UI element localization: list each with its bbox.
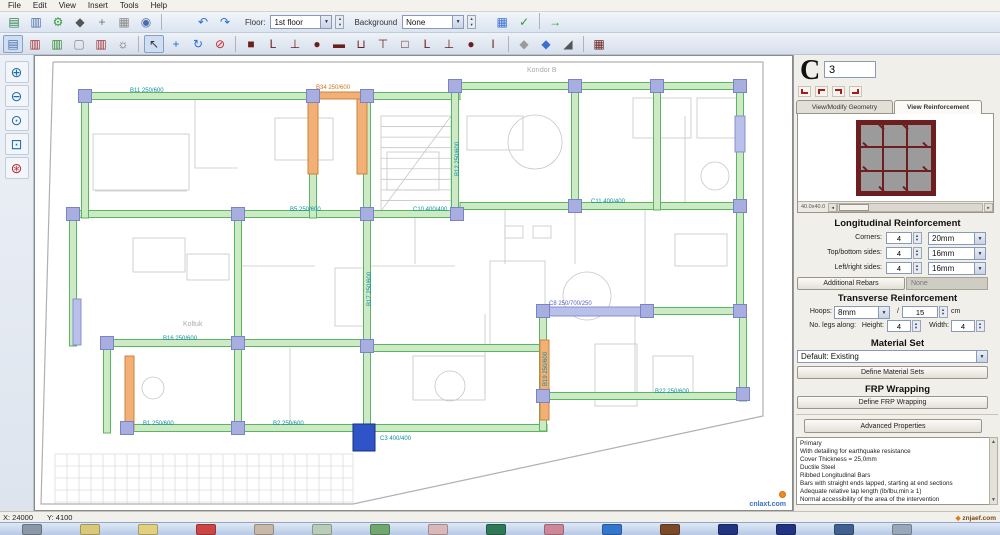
chevron-down-icon[interactable]: ▼ [976, 351, 987, 362]
beam[interactable] [370, 345, 543, 352]
column[interactable] [734, 200, 747, 213]
section-circle-icon[interactable]: ● [307, 35, 327, 53]
plan-canvas[interactable]: cnlaxt.com KoltukKorıdor BB11 250/600B34… [34, 55, 793, 511]
section-octagon-icon[interactable]: ● [461, 35, 481, 53]
note-line: Ribbed Longitudinal Bars [800, 472, 981, 480]
ramp-icon[interactable]: ◢ [558, 35, 578, 53]
leftright-label: Left/right sides: [794, 264, 882, 271]
wall[interactable] [73, 299, 81, 345]
section-drawing [856, 120, 936, 196]
status-bar: X: 24000 Y: 4100 [0, 511, 1000, 522]
menu-insert[interactable]: Insert [83, 1, 113, 10]
taskbar-item-6[interactable] [312, 524, 332, 535]
column[interactable] [734, 80, 747, 93]
building-modeller-icon[interactable]: ▦ [589, 35, 609, 53]
floor-label: Floor: [245, 18, 265, 27]
insert-slab-tool[interactable]: ▢ [69, 35, 89, 53]
taskbar-item-3[interactable] [138, 524, 158, 535]
additional-rebars-button[interactable]: Additional Rebars [797, 277, 905, 290]
redo-icon[interactable]: ↷ [215, 13, 235, 31]
preview-scrollbar[interactable] [837, 203, 983, 212]
section-notes: PrimaryWith detailing for earthquake res… [796, 437, 992, 505]
beam[interactable] [543, 393, 745, 400]
slab-flat-icon[interactable]: ◆ [514, 35, 534, 53]
menu-view[interactable]: View [54, 1, 81, 10]
column[interactable] [79, 90, 92, 103]
element-label: B16 250/600 [163, 336, 198, 342]
floor-select[interactable]: 1st floor ▼ [270, 15, 332, 29]
section-column-icon[interactable]: I [483, 35, 503, 53]
orientation-90-icon[interactable] [815, 86, 828, 97]
topbottom-input[interactable] [886, 247, 912, 259]
corners-diameter-select[interactable]: 20mm ▼ [928, 232, 986, 245]
material-set-title: Material Set [794, 338, 1000, 349]
beam[interactable] [654, 86, 661, 210]
undo-icon[interactable]: ↶ [193, 13, 213, 31]
preview-caption: 40.0x40.0 [798, 204, 828, 210]
column[interactable] [232, 422, 245, 435]
notes-scrollbar[interactable] [989, 437, 998, 505]
column[interactable] [737, 388, 750, 401]
menu-file[interactable]: File [3, 1, 26, 10]
taskbar-item-11[interactable] [602, 524, 622, 535]
building-modeller-window: FileEditViewInsertToolsHelp ▤▥⚙◆+▦◉ ↶↷ F… [0, 0, 1000, 535]
element-label: C11 400/400 [591, 199, 626, 205]
note-line: Normal accessibility of the area of the … [800, 496, 981, 504]
tables-icon[interactable]: ▦ [492, 13, 512, 31]
beam[interactable] [235, 214, 242, 432]
hoops-diameter-value: 8mm [838, 308, 856, 317]
taskbar-item-13[interactable] [718, 524, 738, 535]
note-line: Adequate relative lap length (lb/lbu,min… [800, 488, 981, 496]
watermark-canvas: cnlaxt.com [749, 491, 786, 508]
element-label: C8 250/700/250 [549, 301, 592, 307]
beam[interactable] [82, 96, 89, 218]
section-T2-icon[interactable]: ⊥ [439, 35, 459, 53]
zoom-in-icon[interactable]: ⊕ [5, 61, 29, 83]
corners-spinner[interactable] [913, 232, 922, 244]
toolbar-separator [161, 14, 162, 30]
chevron-down-icon[interactable]: ▼ [974, 263, 985, 274]
topbottom-label: Top/bottom sides: [794, 249, 882, 256]
select-tool[interactable]: ↖ [144, 35, 164, 53]
insert-stair-tool[interactable]: ▥ [91, 35, 111, 53]
floor-value: 1st floor [274, 18, 302, 27]
section-Tbeam-icon[interactable]: ⊤ [373, 35, 393, 53]
column[interactable] [449, 80, 462, 93]
scroll-right-icon[interactable]: ► [984, 203, 993, 212]
hoops-diameter-select[interactable]: 8mm ▼ [834, 306, 890, 319]
beam[interactable] [73, 211, 463, 218]
delete-tool[interactable]: ⊘ [210, 35, 230, 53]
material-set-select[interactable]: Default: Existing ▼ [797, 350, 988, 363]
zoom-out-icon[interactable]: ⊖ [5, 85, 29, 107]
3d-view-icon[interactable]: ◆ [70, 13, 90, 31]
element-label: B11 250/600 [130, 88, 164, 94]
menu-edit[interactable]: Edit [28, 1, 52, 10]
column[interactable] [307, 90, 320, 103]
column[interactable] [361, 208, 374, 221]
beam[interactable] [85, 93, 315, 100]
toolbar-main: ▤▥⚙◆+▦◉ ↶↷ Floor: 1st floor ▼ ▲▼ Backgro… [0, 12, 1000, 33]
column[interactable] [537, 305, 550, 318]
toolbar-separator [539, 13, 540, 29]
svg-text:Koltuk: Koltuk [183, 321, 203, 328]
taskbar-item-2[interactable] [80, 524, 100, 535]
define-frp-wrapping-button[interactable]: Define FRP Wrapping [797, 396, 988, 409]
save-icon[interactable]: ▤ [4, 13, 24, 31]
toolbar-drawing: ▤▥▥▢▥☼↖+↻⊘■L⊥●▬⊔⊤□L⊥●I◆◆◢▦ [0, 33, 1000, 55]
note-line: Primary [800, 440, 981, 448]
toolbar-separator [138, 36, 139, 52]
beam[interactable] [572, 86, 579, 210]
zoom-window-icon[interactable]: ⊡ [5, 133, 29, 155]
menu-help[interactable]: Help [146, 1, 172, 10]
beam[interactable] [647, 308, 745, 315]
additional-rebars-value: None [906, 277, 988, 290]
properties-panel: C View/Modify Geometry View Reinforcemen… [793, 55, 1000, 511]
table-tools-group: ▦✓→ [492, 13, 565, 31]
background-spinner[interactable]: ▲▼ [467, 15, 476, 29]
beam[interactable] [367, 93, 460, 100]
chevron-down-icon[interactable]: ▼ [452, 16, 463, 28]
menu-tools[interactable]: Tools [115, 1, 144, 10]
section-square-icon[interactable]: ■ [241, 35, 261, 53]
column[interactable] [232, 337, 245, 350]
zoom-extents-icon[interactable]: ⊛ [5, 157, 29, 179]
orientation-0-icon[interactable] [798, 86, 811, 97]
print-icon[interactable]: ▦ [114, 13, 134, 31]
beam[interactable] [127, 425, 547, 432]
beam[interactable] [104, 343, 111, 433]
corners-input[interactable] [886, 232, 912, 244]
watermark-logo-icon [779, 491, 786, 498]
element-label: B17 250/600 [367, 271, 373, 306]
tab-view-modify-geometry[interactable]: View/Modify Geometry [796, 100, 893, 114]
corners-diameter-value: 20mm [932, 234, 954, 243]
watermark-diamond-icon: ◆ [956, 515, 961, 522]
run-icon[interactable]: → [545, 13, 565, 31]
taskbar-item-8[interactable] [428, 524, 448, 535]
cursor-y-readout: Y: 4100 [47, 513, 72, 522]
note-line: Cover Thickness = 25,0mm [800, 456, 981, 464]
tab-label: View Reinforcement [907, 104, 969, 111]
column[interactable] [537, 390, 550, 403]
rotate-tool[interactable]: ↻ [188, 35, 208, 53]
note-line: Ductile Steel [800, 464, 981, 472]
element-label: B2 250/600 [273, 421, 304, 427]
orientation-270-icon[interactable] [849, 86, 862, 97]
insert-wall-tool[interactable]: ▥ [47, 35, 67, 53]
legs-width-input[interactable] [951, 320, 975, 332]
taskbar-item-9[interactable] [486, 524, 506, 535]
section-preview: 40.0x40.0 ◄ ► [797, 113, 994, 213]
taskbar-item-14[interactable] [776, 524, 796, 535]
topbottom-diameter-select[interactable]: 16mm ▼ [928, 247, 986, 260]
watermark-taskbar: ◆ znjaef.com [956, 514, 996, 522]
selected-column-C3[interactable] [353, 424, 375, 451]
scroll-left-icon[interactable]: ◄ [828, 203, 837, 212]
taskbar: ◆ znjaef.com [0, 522, 1000, 535]
floor-plan-drawing[interactable]: KoltukKorıdor BB11 250/600B34 250/600B5 … [35, 56, 792, 510]
column[interactable] [67, 208, 80, 221]
menu-bar: FileEditViewInsertToolsHelp [0, 0, 1000, 12]
transverse-title: Transverse Reinforcement [794, 293, 1000, 304]
zoom-toolbar: ⊕⊖⊙⊡⊛ [0, 55, 34, 511]
slab-inclined-icon[interactable]: ◆ [536, 35, 556, 53]
legs-height-input[interactable] [887, 320, 911, 332]
background-value: None [406, 18, 425, 27]
element-label: B19 250/600 [543, 351, 549, 386]
preview-scroll-row: 40.0x40.0 ◄ ► [798, 201, 993, 212]
column[interactable] [361, 90, 374, 103]
leftright-diameter-select[interactable]: 16mm ▼ [928, 262, 986, 275]
column[interactable] [451, 208, 464, 221]
legs-label: No. legs along: [794, 322, 856, 329]
note-line: Bars with straight ends lapped, starting… [800, 480, 981, 488]
section-type-label: C [800, 55, 820, 87]
column[interactable] [651, 80, 664, 93]
undo-group: ↶↷ [193, 13, 235, 31]
column[interactable] [641, 305, 654, 318]
hoop-spacing-input[interactable] [902, 306, 938, 318]
chevron-down-icon[interactable]: ▼ [974, 233, 985, 244]
column[interactable] [121, 422, 134, 435]
corners-label: Corners: [794, 234, 882, 241]
taskbar-item-16[interactable] [892, 524, 912, 535]
leftright-input[interactable] [886, 262, 912, 274]
background-select[interactable]: None ▼ [402, 15, 464, 29]
toolbar-separator [235, 36, 236, 52]
settings-gear-icon[interactable]: ⚙ [48, 13, 68, 31]
longitudinal-title: Longitudinal Reinforcement [794, 218, 1000, 229]
insert-beam-tool[interactable]: ▥ [25, 35, 45, 53]
watermark-domain: cnlaxt.com [749, 501, 786, 508]
column[interactable] [569, 200, 582, 213]
tab-view-reinforcement[interactable]: View Reinforcement [894, 100, 982, 114]
taskbar-item-15[interactable] [834, 524, 854, 535]
export-icon[interactable]: ▥ [26, 13, 46, 31]
shear-wall[interactable] [308, 92, 318, 174]
shear-wall[interactable] [357, 92, 367, 174]
beam[interactable] [455, 83, 743, 90]
chevron-down-icon[interactable]: ▼ [878, 307, 889, 318]
leftright-spinner[interactable] [913, 262, 922, 274]
zoom-actual-icon[interactable]: ⊙ [5, 109, 29, 131]
watermark-domain: znjaef.com [962, 515, 996, 522]
spacing-unit-label: cm [951, 308, 965, 315]
element-label: B5 250/600 [290, 207, 321, 213]
cursor-x-readout: X: 24000 [3, 513, 33, 522]
section-T-footing-icon[interactable]: ⊥ [285, 35, 305, 53]
toolbar-separator [583, 36, 584, 52]
taskbar-item-5[interactable] [254, 524, 274, 535]
pattern-tool[interactable]: ☼ [113, 35, 133, 53]
insert-column-tool[interactable]: ▤ [3, 35, 23, 53]
taskbar-item-10[interactable] [544, 524, 564, 535]
tab-label: View/Modify Geometry [812, 104, 877, 111]
shear-wall[interactable] [125, 356, 134, 430]
element-label: B22 250/600 [655, 389, 690, 395]
chevron-down-icon[interactable]: ▼ [320, 16, 331, 28]
column[interactable] [101, 337, 114, 350]
element-label: C10 400/400 [413, 207, 448, 213]
element-label: C3 400/400 [380, 436, 412, 442]
topbottom-spinner[interactable] [913, 247, 922, 259]
section-id-input[interactable] [824, 61, 876, 78]
column[interactable] [734, 305, 747, 318]
chevron-down-icon[interactable]: ▼ [974, 248, 985, 259]
taskbar-item-12[interactable] [660, 524, 680, 535]
slash-label: / [893, 308, 899, 315]
hoop-spacing-spinner[interactable] [939, 306, 948, 318]
svg-text:Korıdor B: Korıdor B [527, 67, 557, 74]
material-set-value: Default: Existing [801, 352, 859, 361]
note-line: With detailing for earthquake resistance [800, 448, 981, 456]
file-tools-group: ▤▥⚙◆+▦◉ [4, 13, 156, 31]
taskbar-item-7[interactable] [370, 524, 390, 535]
background-label: Background [354, 18, 397, 27]
element-label: B12 250/600 [455, 141, 461, 176]
legs-height-spinner[interactable] [912, 320, 921, 332]
move-tool[interactable]: + [166, 35, 186, 53]
section-box-icon[interactable]: □ [395, 35, 415, 53]
section-L-icon[interactable]: L [263, 35, 283, 53]
wall[interactable] [543, 307, 647, 316]
element-label: B1 250/600 [143, 421, 174, 427]
column[interactable] [361, 340, 374, 353]
orientation-180-icon[interactable] [832, 86, 845, 97]
toolbar-separator [508, 36, 509, 52]
wall[interactable] [735, 116, 745, 152]
frp-wrapping-title: FRP Wrapping [794, 384, 1000, 395]
define-material-sets-button[interactable]: Define Material Sets [797, 366, 988, 379]
checks-icon[interactable]: ✓ [514, 13, 534, 31]
section-wall-icon[interactable]: ▬ [329, 35, 349, 53]
taskbar-item-1[interactable] [22, 524, 42, 535]
topbottom-diameter-value: 16mm [932, 249, 954, 258]
legs-height-label: Height: [858, 322, 884, 329]
hoops-label: Hoops: [802, 308, 832, 315]
snap-axes-icon[interactable]: + [92, 13, 112, 31]
print-preview-icon[interactable]: ◉ [136, 13, 156, 31]
legs-width-label: Width: [925, 322, 949, 329]
column[interactable] [569, 80, 582, 93]
element-label: B34 250/600 [316, 85, 351, 91]
advanced-properties-button[interactable]: Advanced Properties [804, 419, 982, 433]
column[interactable] [232, 208, 245, 221]
structural-elements[interactable]: B11 250/600B34 250/600B5 250/600C10 400/… [67, 80, 750, 452]
section-L2-icon[interactable]: L [417, 35, 437, 53]
panel-divider [796, 414, 998, 415]
section-U-icon[interactable]: ⊔ [351, 35, 371, 53]
taskbar-item-4[interactable] [196, 524, 216, 535]
legs-width-spinner[interactable] [976, 320, 985, 332]
leftright-diameter-value: 16mm [932, 264, 954, 273]
floor-spinner[interactable]: ▲▼ [335, 15, 344, 29]
